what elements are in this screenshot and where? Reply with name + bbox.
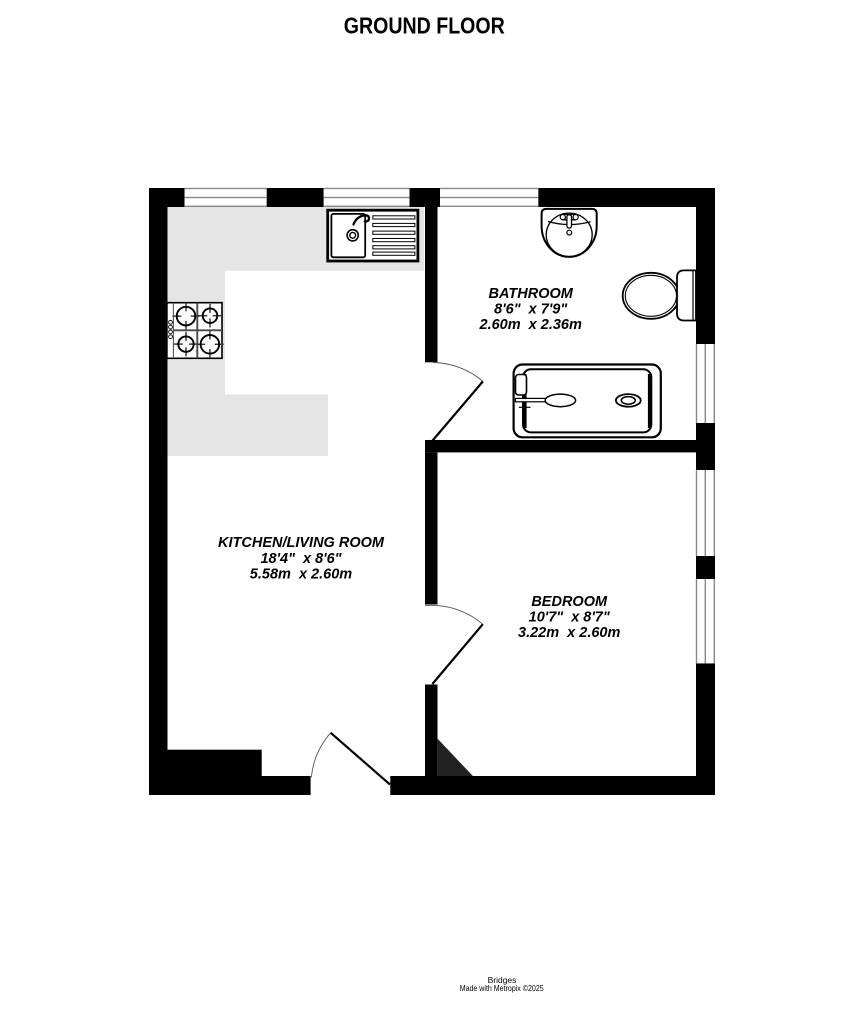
svg-text:3.22m x 2.60m: 3.22m x 2.60m bbox=[518, 625, 620, 641]
svg-text:GROUND FLOOR: GROUND FLOOR bbox=[344, 13, 505, 39]
svg-text:Made with Metropix ©2025: Made with Metropix ©2025 bbox=[460, 983, 544, 993]
svg-text:BATHROOM: BATHROOM bbox=[489, 286, 574, 302]
svg-text:8'6" x 7'9": 8'6" x 7'9" bbox=[494, 302, 568, 318]
svg-text:10'7" x 8'7": 10'7" x 8'7" bbox=[529, 609, 611, 625]
svg-text:5.58m x 2.60m: 5.58m x 2.60m bbox=[250, 566, 352, 582]
svg-text:BEDROOM: BEDROOM bbox=[531, 594, 608, 610]
svg-text:KITCHEN/LIVING ROOM: KITCHEN/LIVING ROOM bbox=[218, 535, 385, 551]
svg-text:2.60m x 2.36m: 2.60m x 2.36m bbox=[479, 317, 582, 333]
svg-text:18'4" x 8'6": 18'4" x 8'6" bbox=[260, 551, 342, 567]
